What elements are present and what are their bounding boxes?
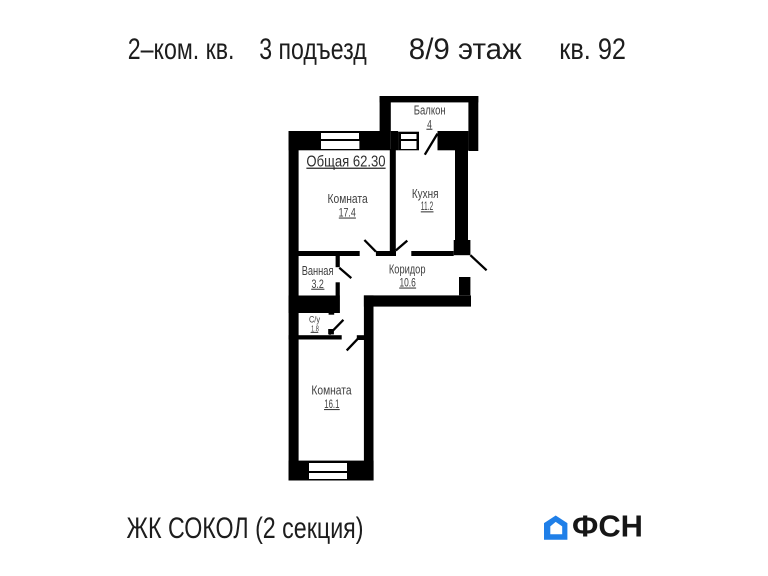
svg-text:11.2: 11.2 [421, 200, 434, 213]
svg-text:С/у: С/у [309, 315, 320, 325]
svg-text:10.6: 10.6 [399, 276, 415, 289]
svg-text:16.1: 16.1 [324, 398, 339, 411]
svg-text:ЖК СОКОЛ (2 секция): ЖК СОКОЛ (2 секция) [127, 512, 364, 545]
svg-text:Комната: Комната [311, 383, 352, 398]
svg-text:Балкон: Балкон [414, 103, 446, 118]
svg-text:Кухня: Кухня [412, 186, 439, 201]
svg-text:8/9 этаж: 8/9 этаж [409, 33, 522, 66]
svg-text:Ванная: Ванная [302, 263, 334, 278]
svg-text:кв. 92: кв. 92 [559, 33, 626, 66]
svg-text:3 подъезд: 3 подъезд [259, 33, 367, 66]
svg-text:Комната: Комната [328, 191, 369, 206]
svg-text:ФСН: ФСН [572, 510, 643, 544]
svg-text:17.4: 17.4 [339, 206, 356, 219]
svg-text:2–ком. кв.: 2–ком. кв. [128, 33, 235, 66]
svg-text:Коридор: Коридор [389, 262, 426, 277]
